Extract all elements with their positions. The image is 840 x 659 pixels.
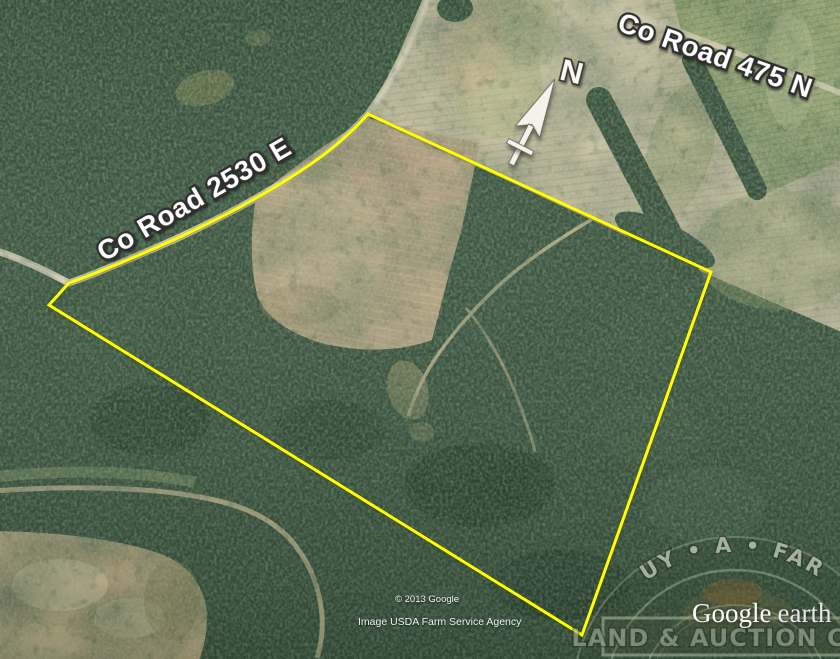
aerial-map: Co Road 2530 E Co Road 475 N N © 2013 Go…: [0, 0, 840, 659]
copyright-text: © 2013 Google: [395, 594, 459, 605]
aerial-map-screenshot: Co Road 2530 E Co Road 475 N N © 2013 Go…: [0, 0, 840, 659]
watermark-banner-text: LAND & AUCTION CO.: [571, 624, 840, 652]
google-earth-logo: Googleearth: [692, 598, 832, 628]
google-earth-logo-google: Google: [692, 598, 772, 628]
google-earth-logo-earth: earth: [777, 598, 831, 628]
imagery-credit-text: Image USDA Farm Service Agency: [358, 616, 522, 628]
